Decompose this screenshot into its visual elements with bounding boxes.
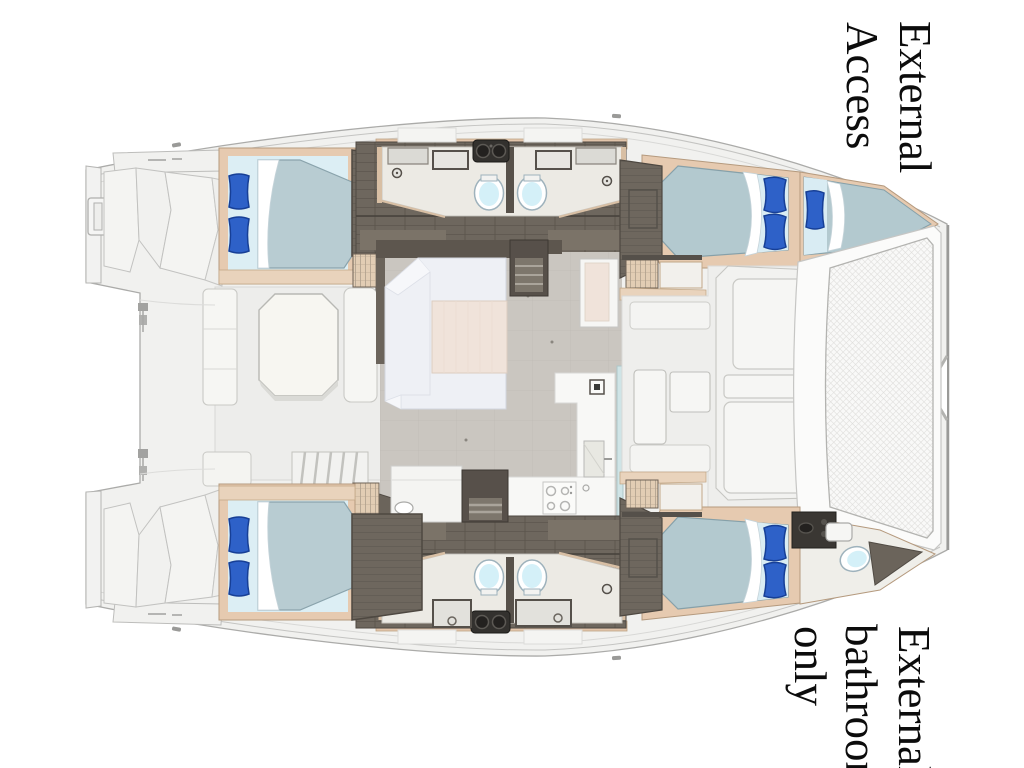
svg-text:External: External <box>889 626 939 768</box>
svg-text:only: only <box>785 626 835 707</box>
svg-text:bathroom: bathroom <box>836 624 886 768</box>
svg-text:External: External <box>890 21 940 173</box>
svg-text:Access: Access <box>837 22 887 149</box>
